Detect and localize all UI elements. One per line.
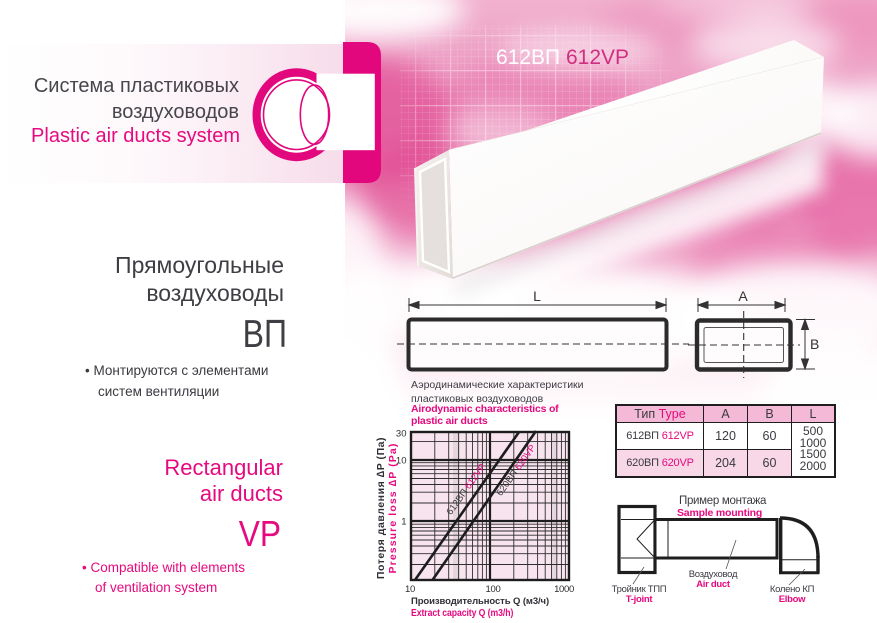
- svg-text:A: A: [738, 288, 748, 304]
- svg-text:B: B: [810, 336, 819, 352]
- svg-text:10: 10: [405, 584, 415, 595]
- svg-text:1000: 1000: [554, 584, 574, 595]
- svg-text:100: 100: [486, 584, 501, 595]
- svg-text:L: L: [533, 288, 541, 304]
- svg-text:1: 1: [401, 517, 406, 528]
